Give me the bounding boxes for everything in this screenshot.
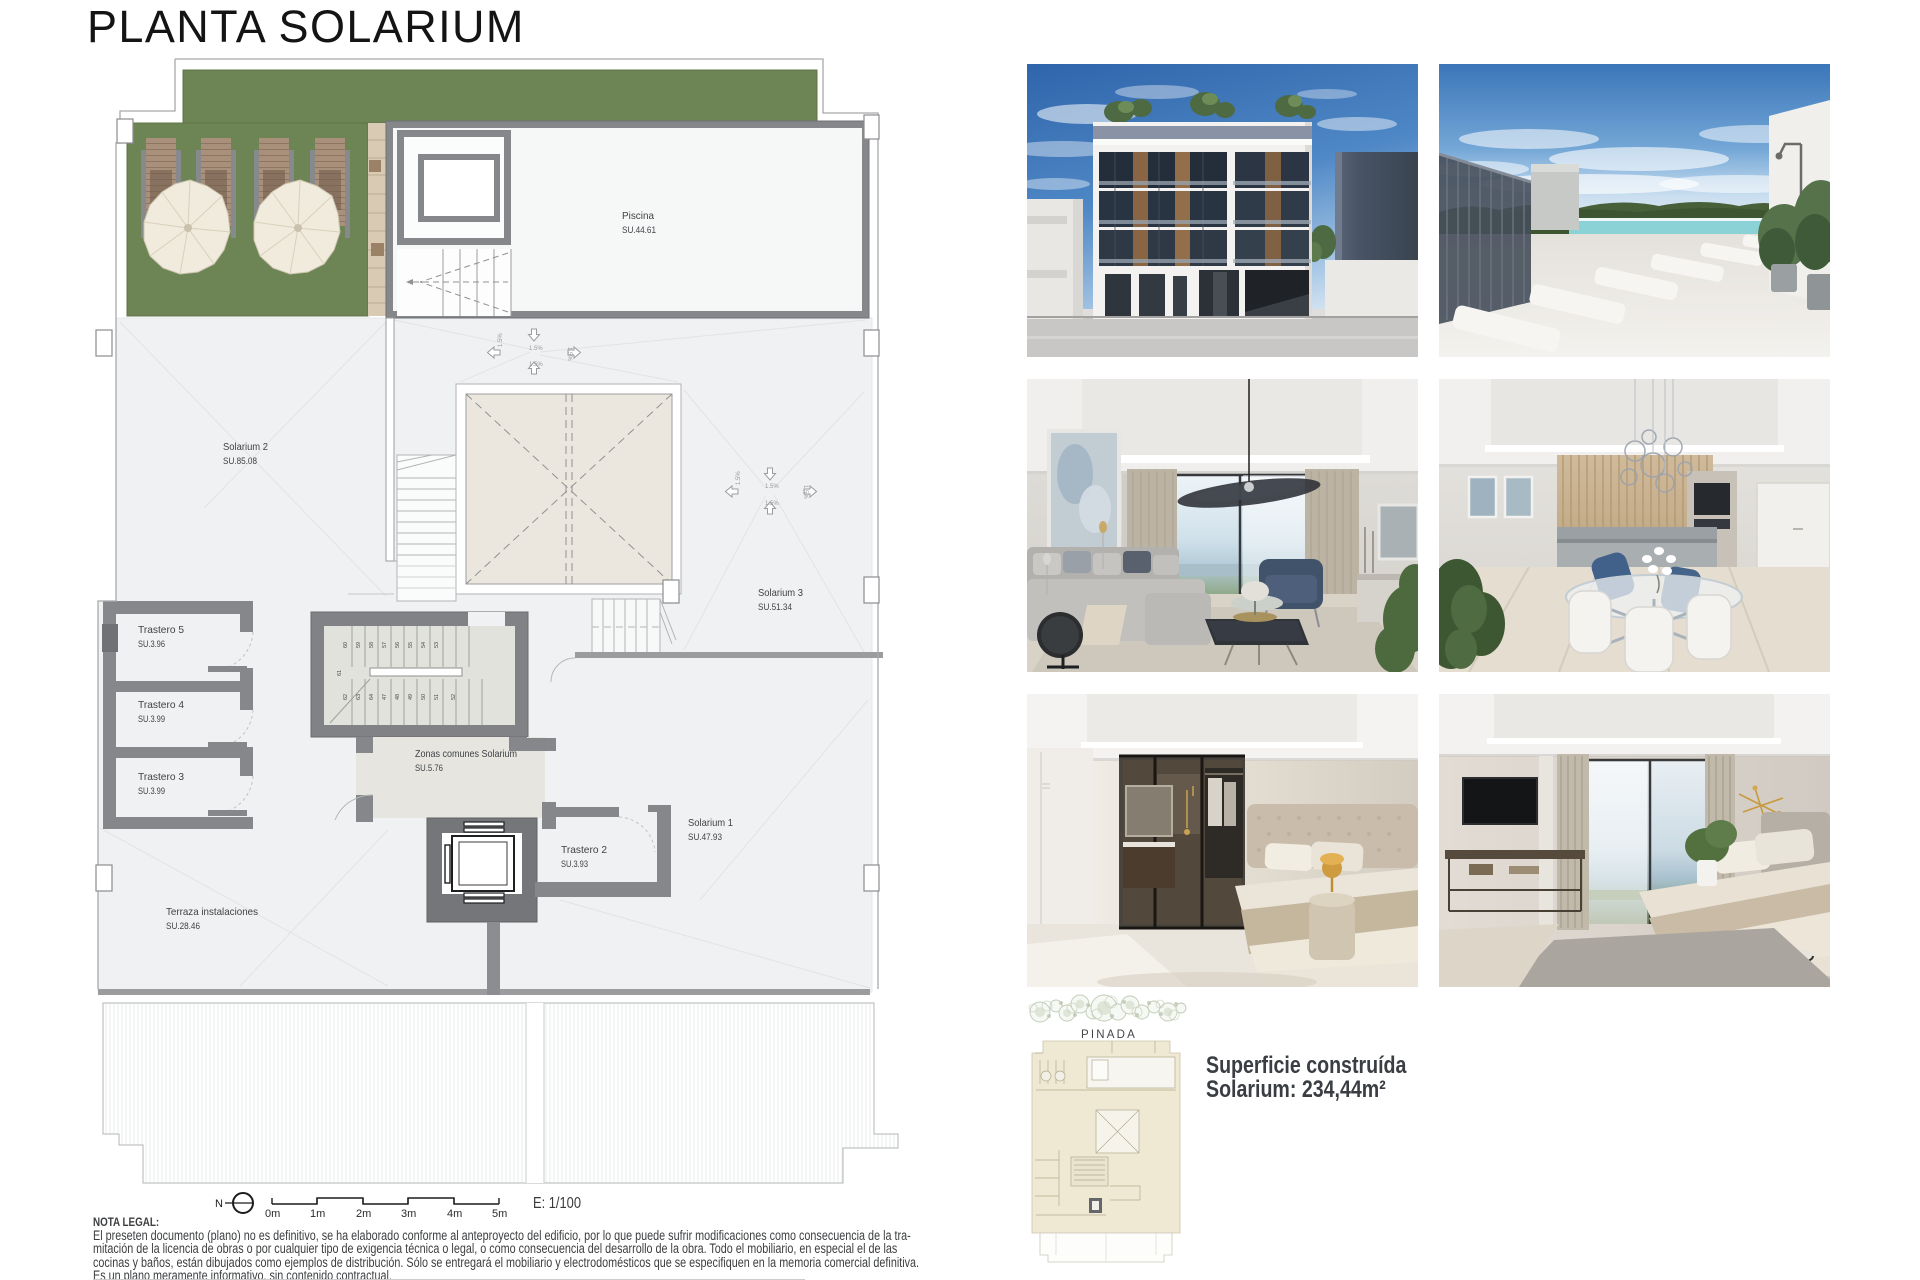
svg-text:Trastero 5: Trastero 5 xyxy=(138,624,184,636)
svg-text:E: 1/100: E: 1/100 xyxy=(533,1195,581,1212)
svg-text:53: 53 xyxy=(434,642,440,648)
svg-text:SU.3.99: SU.3.99 xyxy=(138,786,165,796)
svg-text:SU.47.93: SU.47.93 xyxy=(688,832,722,842)
svg-text:N: N xyxy=(215,1198,223,1210)
svg-text:52: 52 xyxy=(451,694,457,700)
svg-text:Trastero 2: Trastero 2 xyxy=(561,844,607,856)
svg-text:SU.51.34: SU.51.34 xyxy=(758,602,792,612)
svg-text:61: 61 xyxy=(337,670,343,676)
svg-text:1.5%: 1.5% xyxy=(802,485,808,499)
svg-text:56: 56 xyxy=(395,642,401,648)
svg-text:SU.3.93: SU.3.93 xyxy=(561,859,588,869)
svg-text:Solarium 1: Solarium 1 xyxy=(688,817,733,829)
svg-text:55: 55 xyxy=(408,642,414,648)
svg-text:1.5%: 1.5% xyxy=(529,346,543,352)
svg-text:64: 64 xyxy=(369,694,375,700)
svg-text:62: 62 xyxy=(343,694,349,700)
svg-text:60: 60 xyxy=(343,642,349,648)
svg-text:1.5%: 1.5% xyxy=(765,501,779,507)
svg-text:48: 48 xyxy=(395,694,401,700)
svg-text:Trastero 3: Trastero 3 xyxy=(138,771,184,783)
svg-text:54: 54 xyxy=(421,642,427,648)
svg-text:47: 47 xyxy=(382,694,388,700)
svg-text:49: 49 xyxy=(408,694,414,700)
svg-text:1.5%: 1.5% xyxy=(498,333,504,347)
svg-text:63: 63 xyxy=(356,694,362,700)
svg-text:Solarium 3: Solarium 3 xyxy=(758,587,803,599)
svg-text:SU.44.61: SU.44.61 xyxy=(622,225,656,235)
svg-text:SU.28.46: SU.28.46 xyxy=(166,921,200,931)
svg-text:Zonas comunes Solarium: Zonas comunes Solarium xyxy=(415,748,517,760)
svg-text:SU.3.99: SU.3.99 xyxy=(138,714,165,724)
svg-text:SU.5.76: SU.5.76 xyxy=(415,763,443,773)
svg-text:Piscina: Piscina xyxy=(622,210,654,222)
svg-text:51: 51 xyxy=(434,694,440,700)
svg-text:Solarium 2: Solarium 2 xyxy=(223,441,268,453)
svg-text:58: 58 xyxy=(369,642,375,648)
svg-text:1.5%: 1.5% xyxy=(736,471,742,485)
svg-text:SU.85.08: SU.85.08 xyxy=(223,456,257,466)
svg-text:1.5%: 1.5% xyxy=(566,347,572,361)
svg-text:1.5%: 1.5% xyxy=(765,484,779,490)
svg-text:Terraza instalaciones: Terraza instalaciones xyxy=(166,906,258,918)
svg-text:59: 59 xyxy=(356,642,362,648)
svg-text:SU.3.96: SU.3.96 xyxy=(138,639,165,649)
svg-text:Trastero 4: Trastero 4 xyxy=(138,699,184,711)
svg-text:57: 57 xyxy=(382,642,388,648)
svg-text:PINADA: PINADA xyxy=(1081,1029,1137,1041)
svg-text:1.5%: 1.5% xyxy=(529,362,543,368)
svg-text:50: 50 xyxy=(421,694,427,700)
